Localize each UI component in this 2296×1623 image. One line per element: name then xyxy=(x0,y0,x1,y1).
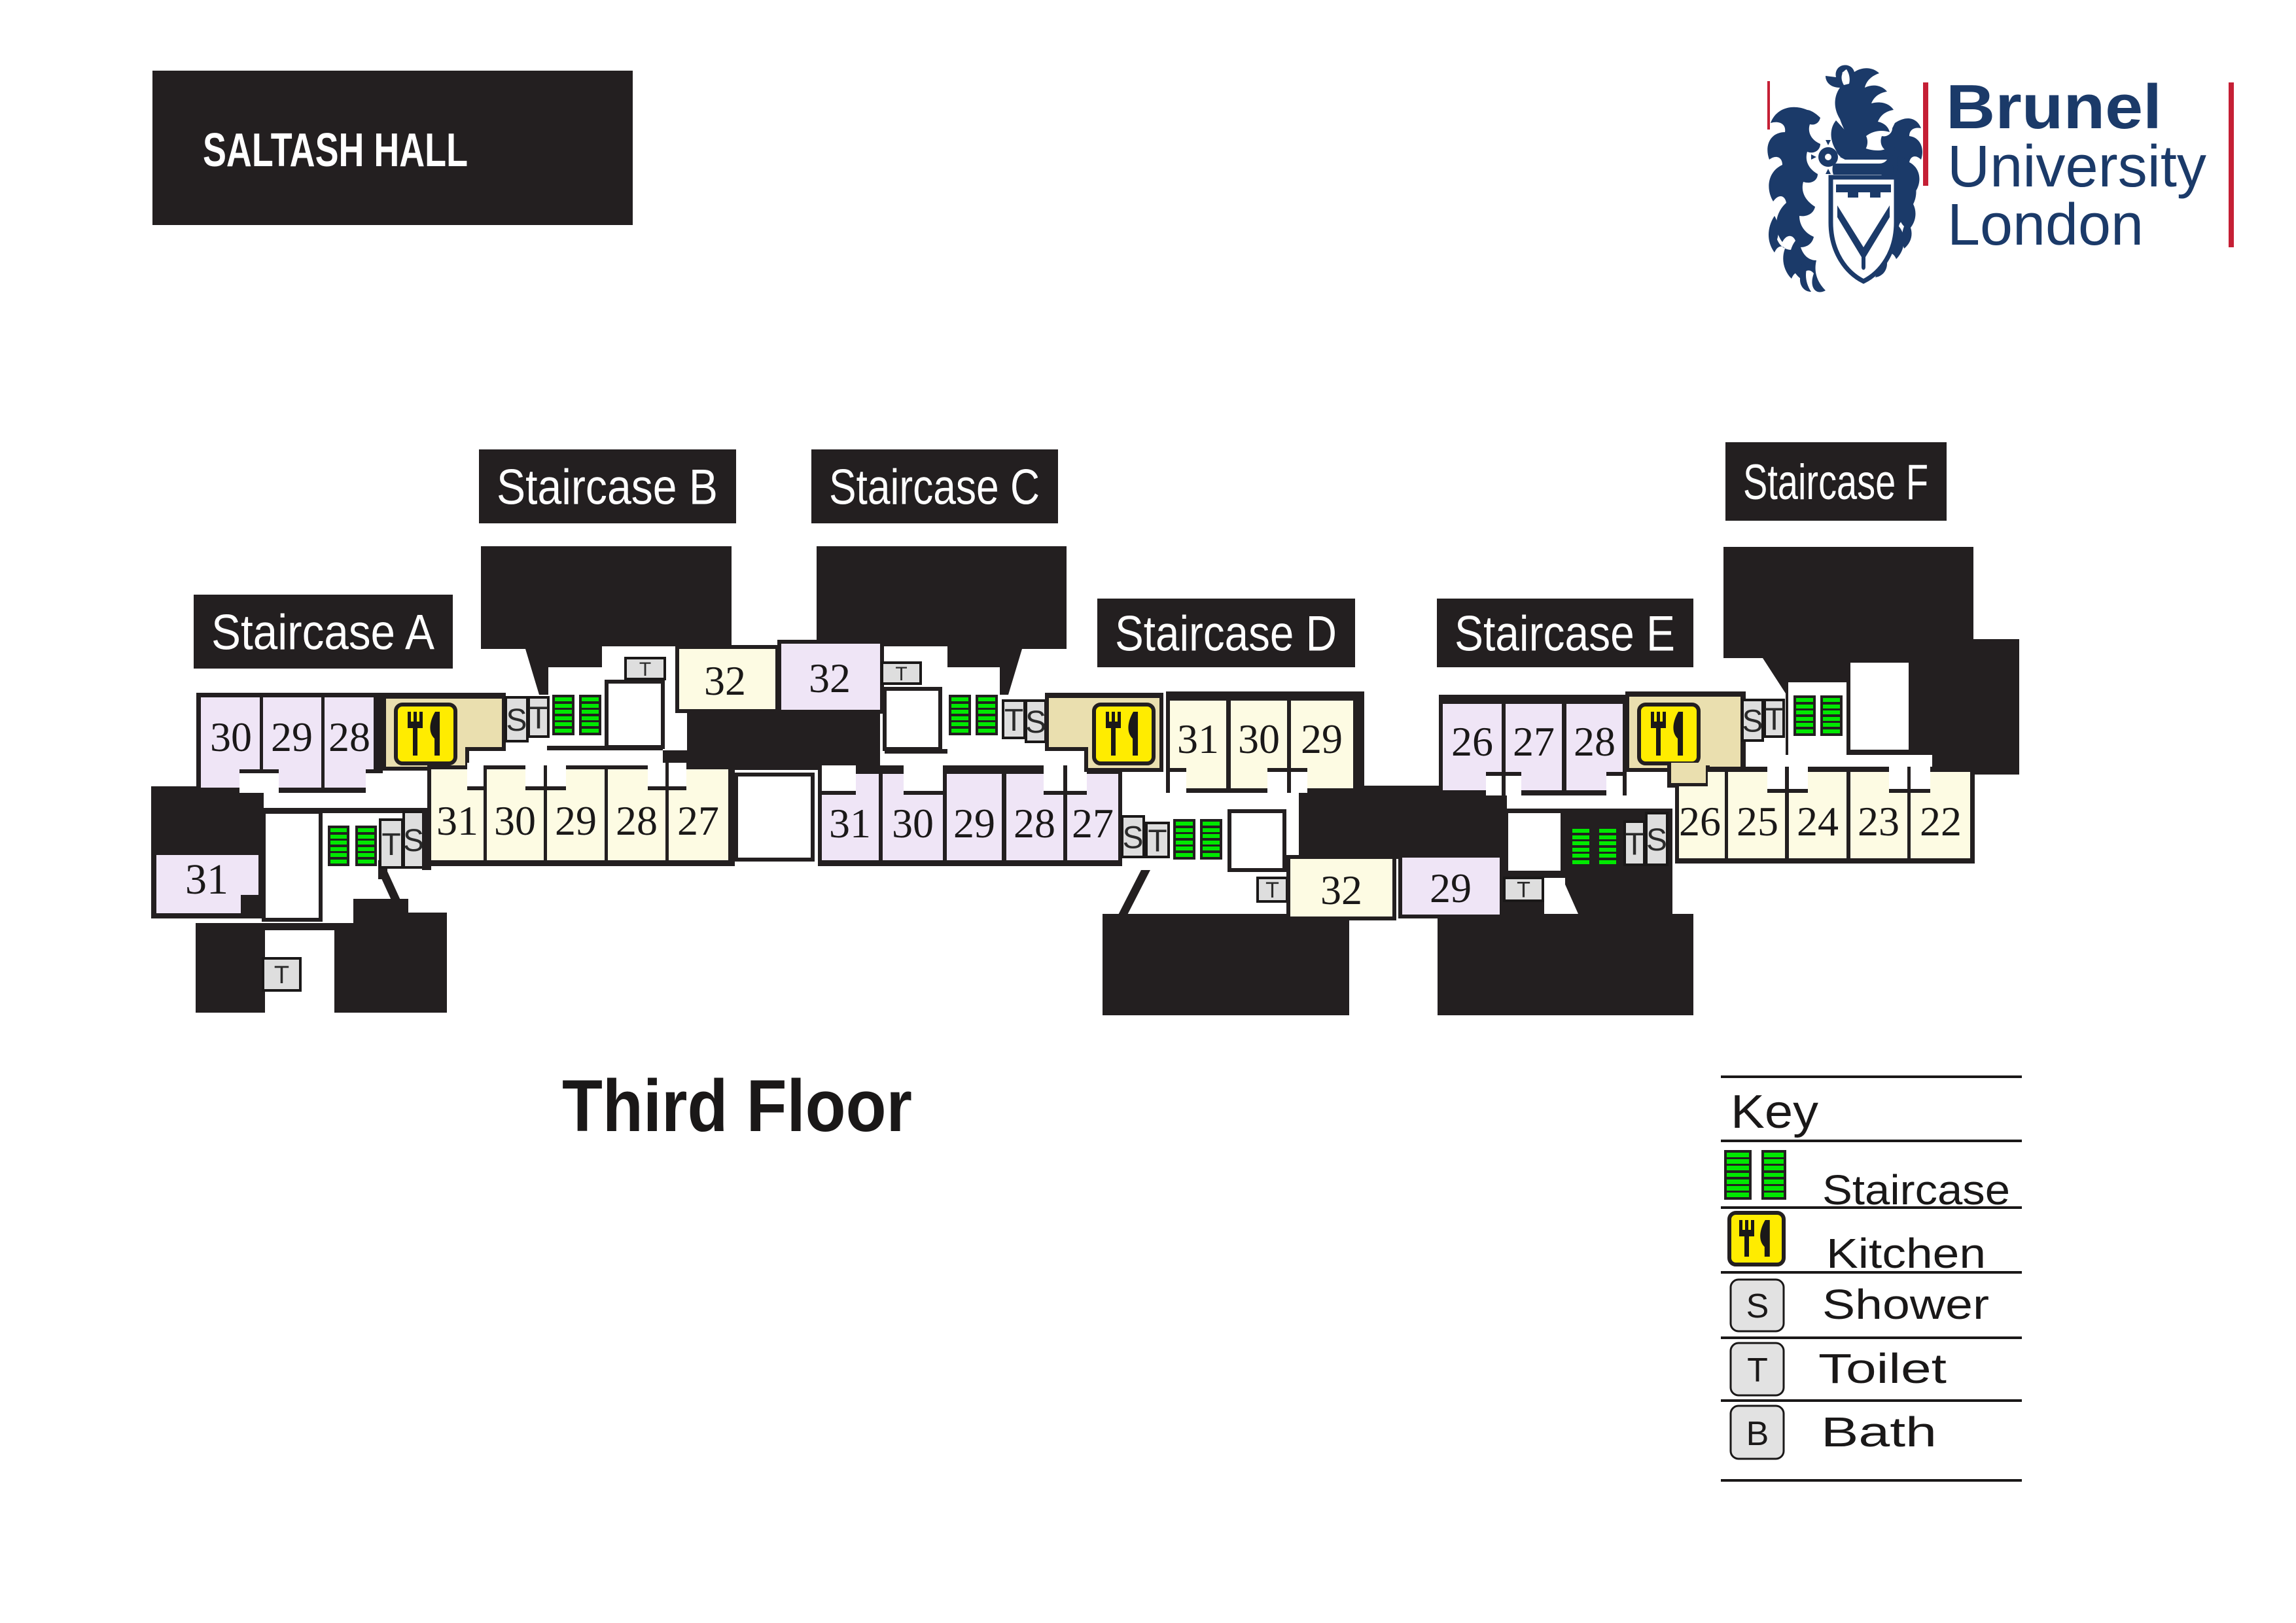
svg-text:Brunel: Brunel xyxy=(1946,72,2162,142)
svg-text:27: 27 xyxy=(1513,718,1555,765)
svg-text:Third Floor: Third Floor xyxy=(562,1065,912,1147)
svg-text:29: 29 xyxy=(1430,865,1472,911)
svg-text:31: 31 xyxy=(829,800,871,846)
svg-text:S: S xyxy=(1122,820,1143,855)
svg-text:T: T xyxy=(895,663,907,685)
svg-text:T: T xyxy=(1765,702,1784,737)
svg-text:S: S xyxy=(1646,823,1667,858)
svg-text:T: T xyxy=(1148,824,1167,858)
svg-text:26: 26 xyxy=(1679,798,1721,845)
svg-text:24: 24 xyxy=(1797,798,1839,845)
svg-text:31: 31 xyxy=(436,797,478,844)
svg-text:27: 27 xyxy=(677,797,719,844)
svg-text:29: 29 xyxy=(1301,716,1343,762)
svg-text:S: S xyxy=(403,824,424,858)
svg-text:T: T xyxy=(274,962,289,989)
svg-text:Staircase A: Staircase A xyxy=(211,604,434,660)
svg-text:30: 30 xyxy=(494,797,536,844)
svg-text:Staircase E: Staircase E xyxy=(1455,606,1675,661)
svg-text:31: 31 xyxy=(1177,716,1219,762)
svg-text:23: 23 xyxy=(1858,798,1899,845)
svg-text:T: T xyxy=(529,701,548,735)
svg-text:32: 32 xyxy=(704,657,746,704)
svg-text:Staircase C: Staircase C xyxy=(829,459,1040,515)
svg-text:Staircase B: Staircase B xyxy=(497,459,718,515)
svg-text:B: B xyxy=(1746,1415,1769,1453)
svg-text:29: 29 xyxy=(555,797,597,844)
svg-text:30: 30 xyxy=(892,800,934,846)
svg-text:28: 28 xyxy=(1574,718,1616,765)
svg-text:26: 26 xyxy=(1451,718,1493,765)
svg-text:T: T xyxy=(1747,1352,1768,1389)
svg-text:S: S xyxy=(1746,1287,1769,1325)
svg-text:University: University xyxy=(1947,134,2206,200)
svg-text:28: 28 xyxy=(616,797,658,844)
svg-text:SALTASH HALL: SALTASH HALL xyxy=(203,124,468,177)
svg-text:28: 28 xyxy=(328,714,370,760)
svg-text:29: 29 xyxy=(953,800,995,846)
svg-text:22: 22 xyxy=(1920,798,1962,845)
svg-text:29: 29 xyxy=(271,714,313,760)
svg-text:30: 30 xyxy=(210,714,252,760)
svg-text:London: London xyxy=(1947,192,2144,258)
svg-text:Staircase: Staircase xyxy=(1822,1166,2010,1213)
svg-text:T: T xyxy=(1625,827,1644,862)
svg-text:32: 32 xyxy=(1320,867,1362,913)
svg-text:27: 27 xyxy=(1072,800,1114,846)
svg-text:S: S xyxy=(1742,704,1763,739)
svg-text:Staircase F: Staircase F xyxy=(1743,455,1928,510)
svg-text:T: T xyxy=(1265,878,1279,903)
svg-text:S: S xyxy=(506,703,527,738)
svg-text:31: 31 xyxy=(185,856,228,903)
svg-text:T: T xyxy=(1004,703,1023,738)
svg-text:30: 30 xyxy=(1238,716,1280,762)
svg-text:28: 28 xyxy=(1014,800,1055,846)
svg-text:Toilet: Toilet xyxy=(1818,1345,1947,1392)
svg-text:Key: Key xyxy=(1731,1086,1818,1138)
svg-text:T: T xyxy=(639,659,651,680)
svg-text:T: T xyxy=(381,828,400,862)
svg-text:S: S xyxy=(1025,705,1046,740)
svg-text:25: 25 xyxy=(1737,798,1778,845)
svg-text:T: T xyxy=(1517,878,1530,903)
svg-text:Bath: Bath xyxy=(1821,1408,1937,1456)
svg-text:Shower: Shower xyxy=(1822,1281,1989,1328)
svg-text:Staircase D: Staircase D xyxy=(1115,606,1337,661)
svg-text:32: 32 xyxy=(809,655,851,701)
svg-text:Kitchen: Kitchen xyxy=(1826,1230,1986,1277)
